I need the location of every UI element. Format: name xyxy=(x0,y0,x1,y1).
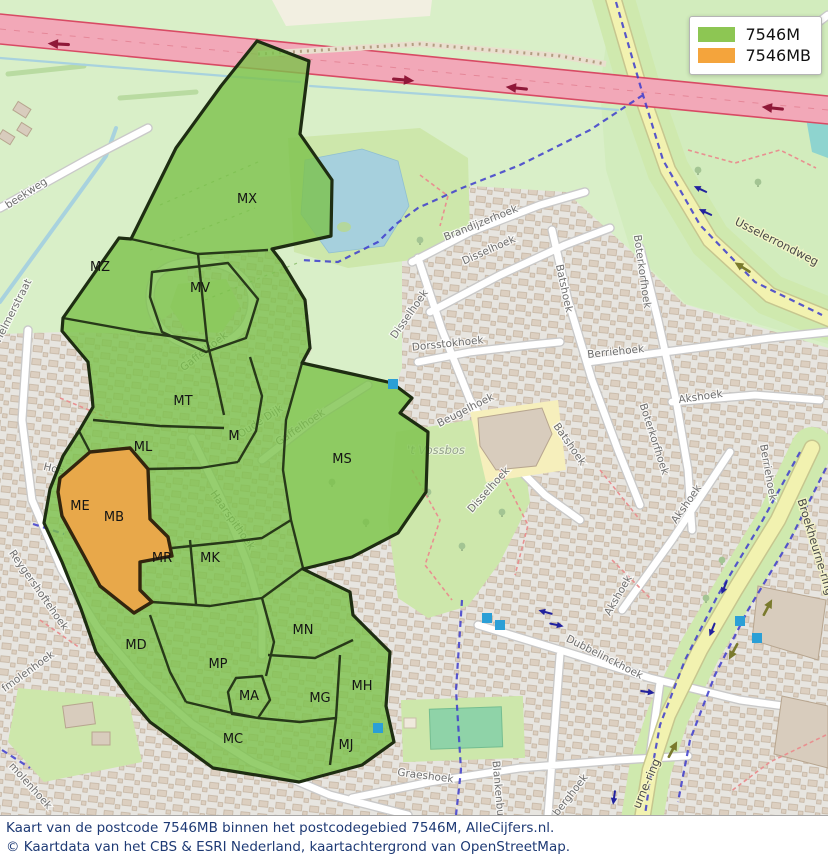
region-label-mx: MX xyxy=(237,192,257,207)
region-label-ms: MS xyxy=(332,452,351,467)
map-canvas[interactable]: beekwegHelmerstraatGaffelhoekGaffelhoekO… xyxy=(0,0,828,815)
region-label-mv: MV xyxy=(190,281,210,296)
legend-label: 7546M xyxy=(746,26,801,43)
bus-stop-marker xyxy=(373,723,383,733)
bus-stop-marker xyxy=(735,616,745,626)
legend-item: 7546M xyxy=(698,26,812,43)
lake-island xyxy=(337,222,351,232)
legend-item: 7546MB xyxy=(698,47,812,64)
region-label-mr: MR xyxy=(152,551,172,566)
region-label-mb: MB xyxy=(104,510,124,525)
sports-pitch xyxy=(429,707,502,749)
region-label-mp: MP xyxy=(208,657,227,672)
bus-stop-marker xyxy=(388,379,398,389)
caption-line2: © Kaartdata van het CBS & ESRI Nederland… xyxy=(0,838,828,857)
region-label-me: ME xyxy=(70,499,89,514)
caption: Kaart van de postcode 7546MB binnen het … xyxy=(0,815,828,861)
legend-swatch xyxy=(698,27,735,42)
region-label-mz: MZ xyxy=(90,260,110,275)
bus-stop-marker xyxy=(752,633,762,643)
region-label-mh: MH xyxy=(352,679,373,694)
region-label-mt: MT xyxy=(173,394,192,409)
map-screenshot: beekwegHelmerstraatGaffelhoekGaffelhoekO… xyxy=(0,0,828,861)
region-label-mc: MC xyxy=(223,732,243,747)
map[interactable]: beekwegHelmerstraatGaffelhoekGaffelhoekO… xyxy=(0,0,828,815)
pitch-shed xyxy=(404,718,416,728)
legend-swatch xyxy=(698,48,735,63)
region-label-md: MD xyxy=(125,638,146,653)
region-label-ma: MA xyxy=(239,689,259,704)
region-label-mg: MG xyxy=(309,691,330,706)
region-label-ml: ML xyxy=(134,440,153,455)
bus-stop-marker xyxy=(482,613,492,623)
legend: 7546M7546MB xyxy=(689,16,823,75)
region-label-mj: MJ xyxy=(338,738,353,753)
caption-line1: Kaart van de postcode 7546MB binnen het … xyxy=(0,816,828,838)
region-label-mn: MN xyxy=(293,623,314,638)
bus-stop-marker xyxy=(495,620,505,630)
legend-label: 7546MB xyxy=(746,47,812,64)
region-label-mk: MK xyxy=(200,551,220,566)
region-label-m: M xyxy=(228,429,239,444)
